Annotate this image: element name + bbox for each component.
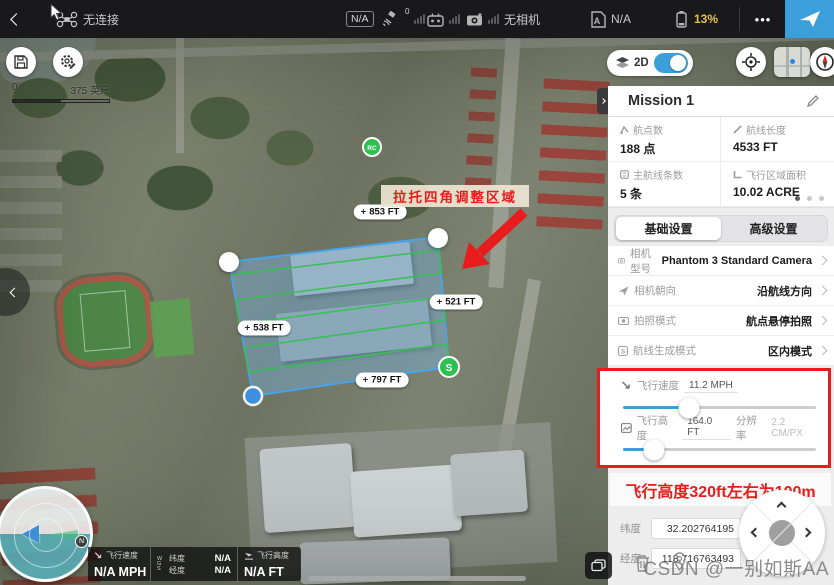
map-trees xyxy=(0,38,300,228)
map-building xyxy=(290,242,414,296)
chevron-up-icon[interactable] xyxy=(777,502,787,512)
map-red-roofs xyxy=(465,67,497,188)
telemetry-lng-value: N/A xyxy=(191,565,231,576)
setting-photo-mode[interactable]: 拍照模式 航点悬停拍照 xyxy=(608,306,834,336)
heading-wedge xyxy=(46,530,78,540)
setting-label: 相机朝向 xyxy=(634,283,676,298)
chevron-right-icon xyxy=(818,346,828,356)
chevron-right-icon xyxy=(600,98,606,104)
more-button[interactable]: ••• xyxy=(746,0,780,38)
setting-label: 航线生成模式 xyxy=(633,343,696,358)
telemetry-lng-label: 经度 xyxy=(169,565,185,576)
rc-signal-bars xyxy=(449,14,460,24)
rc-status xyxy=(427,0,460,38)
collapse-panel-button[interactable] xyxy=(597,88,608,114)
setting-value: 沿航线方向 xyxy=(757,283,812,299)
stat-value: 4533 FT xyxy=(733,140,834,154)
gps-count: 0 xyxy=(405,7,409,16)
resolution-label: 分辨率 xyxy=(736,413,766,443)
chevron-right-icon xyxy=(818,286,828,296)
edit-pencil-icon[interactable] xyxy=(806,94,820,108)
mission-stats: 航点数 188 点 航线长度 4533 FT xyxy=(608,117,834,208)
stat-value: 188 点 xyxy=(620,140,720,157)
mission-title: Mission 1 xyxy=(628,93,806,109)
speed-value: 11.2 MPH xyxy=(684,379,738,393)
stat-route-length: 航线长度 4533 FT xyxy=(721,117,834,162)
aircraft-arrow-icon xyxy=(22,525,39,543)
takeoff-button[interactable] xyxy=(785,0,834,38)
locate-button[interactable] xyxy=(736,47,766,77)
scale-start: 0 xyxy=(12,82,18,97)
setting-camera-model[interactable]: 相机型号 Phantom 3 Standard Camera xyxy=(608,246,834,276)
telemetry-coords: WGS 纬度 N/A 经度 N/A xyxy=(150,547,237,581)
stats-page-dots[interactable] xyxy=(795,196,824,201)
telemetry-alt-label: 飞行高度 xyxy=(257,550,289,561)
save-mission-button[interactable] xyxy=(6,47,36,77)
flight-mode-badge: N/A xyxy=(346,0,374,38)
remote-controller-icon xyxy=(427,12,444,27)
mode-value: N/A xyxy=(346,11,374,27)
mouse-cursor xyxy=(50,3,63,21)
map-building xyxy=(276,298,432,362)
edge-length-value: 521 FT xyxy=(445,297,475,308)
map-building xyxy=(259,443,357,533)
north-badge: N xyxy=(75,535,88,548)
svg-text:A: A xyxy=(594,16,601,26)
flight-mode-status: A N/A xyxy=(590,0,631,38)
stat-label: 航点数 xyxy=(633,122,663,137)
speed-slider-thumb[interactable] xyxy=(678,397,699,418)
stat-waypoints: 航点数 188 点 xyxy=(608,117,721,162)
edge-length-label[interactable]: + 538 FT xyxy=(238,321,291,336)
save-icon xyxy=(13,54,29,70)
telemetry-strip: 飞行速度 N/A MPH WGS 纬度 N/A 经度 N/A 飞行高度 N/A … xyxy=(88,547,301,581)
battery-status: 13% xyxy=(674,0,718,38)
altitude-slider[interactable] xyxy=(623,448,816,451)
settings-tabs: 基础设置 高级设置 xyxy=(608,208,834,242)
mission-panel: Mission 1 航点数 188 点 xyxy=(608,86,834,585)
dpad-center-knob[interactable] xyxy=(769,520,795,546)
flight-sliders-highlight: 飞行速度 11.2 MPH 飞行高度 164.0 FT 分辨率 2.2 CM/P… xyxy=(597,368,831,468)
setting-label: 相机型号 xyxy=(630,246,657,276)
drag-icon: + xyxy=(361,207,367,218)
resolution-value: 2.2 CM/PX xyxy=(771,417,818,439)
chevron-right-icon[interactable] xyxy=(802,528,812,538)
stat-label: 主航线条数 xyxy=(633,167,683,182)
edge-length-label[interactable]: + 797 FT xyxy=(356,373,409,388)
camera-signal-bars xyxy=(488,14,499,24)
chevron-right-icon xyxy=(818,256,828,266)
speed-slider[interactable] xyxy=(623,406,816,409)
layers-icon xyxy=(591,559,606,572)
altitude-slider-thumb[interactable] xyxy=(643,439,664,460)
gps-signal-bars xyxy=(414,14,425,24)
compass-icon xyxy=(815,52,834,72)
battery-icon xyxy=(674,10,689,28)
edge-length-value: 538 FT xyxy=(253,323,283,334)
chevron-left-icon xyxy=(10,13,23,26)
stat-label: 航线长度 xyxy=(746,122,786,137)
setting-value: 航点悬停拍照 xyxy=(746,313,812,329)
speed-icon xyxy=(94,551,103,560)
altitude-row: 飞行高度 164.0 FT 分辨率 2.2 CM/PX xyxy=(621,419,818,436)
camera-status-text: 无相机 xyxy=(504,11,540,28)
chevron-right-icon xyxy=(818,316,828,326)
2d-label: 2D xyxy=(634,57,649,69)
setting-value: 区内模式 xyxy=(768,343,812,359)
svg-text:S: S xyxy=(621,348,626,355)
setting-value: Phantom 3 Standard Camera xyxy=(662,255,812,267)
connection-status: 无连接 xyxy=(83,11,119,28)
telemetry-lat-label: 纬度 xyxy=(169,553,185,564)
telemetry-speed: 飞行速度 N/A MPH xyxy=(88,547,150,581)
edge-length-label[interactable]: + 521 FT xyxy=(430,295,483,310)
speed-icon xyxy=(621,380,632,391)
scale-end: 375 英尺 xyxy=(71,82,110,97)
map-scale: 0 375 英尺 xyxy=(12,82,110,103)
latitude-field[interactable] xyxy=(651,518,741,539)
gear-edit-icon xyxy=(59,53,77,71)
speed-label: 飞行速度 xyxy=(637,378,679,393)
status-bar: 无连接 N/A 0 xyxy=(0,0,834,38)
camera-icon xyxy=(618,256,625,265)
map-court xyxy=(150,298,195,357)
edge-length-value: 797 FT xyxy=(371,375,401,386)
flight-log-icon: A xyxy=(590,11,606,28)
telemetry-alt-value: N/A FT xyxy=(244,565,295,579)
compass-button[interactable] xyxy=(810,47,834,77)
edge-length-value: 853 FT xyxy=(369,207,399,218)
drag-icon: + xyxy=(437,297,443,308)
battery-percent: 13% xyxy=(694,12,718,26)
map-sports-field xyxy=(54,272,155,370)
tab-advanced-settings[interactable]: 高级设置 xyxy=(721,217,826,240)
main-lines-icon xyxy=(620,170,629,179)
home-indicator[interactable] xyxy=(308,576,526,581)
speed-row: 飞行速度 11.2 MPH xyxy=(621,377,818,394)
map-building xyxy=(350,464,462,537)
setting-route-generation[interactable]: S 航线生成模式 区内模式 xyxy=(608,336,834,366)
stat-value: 5 条 xyxy=(620,185,720,202)
waypoint-icon xyxy=(620,125,629,134)
back-button[interactable] xyxy=(12,0,21,38)
drag-icon: + xyxy=(245,323,251,334)
wgs-label: WGS xyxy=(157,557,164,572)
setting-camera-heading[interactable]: 相机朝向 沿航线方向 xyxy=(608,276,834,306)
map-building xyxy=(450,449,528,516)
map-road xyxy=(488,279,541,508)
mission-settings-button[interactable] xyxy=(53,47,83,77)
map-road xyxy=(488,38,520,288)
setting-label: 拍照模式 xyxy=(634,313,676,328)
aircraft-connection: 无连接 xyxy=(56,0,119,38)
map-type-button[interactable] xyxy=(585,552,612,579)
telemetry-speed-label: 飞行速度 xyxy=(106,550,138,561)
chevron-left-icon[interactable] xyxy=(751,528,761,538)
route-length-icon xyxy=(733,125,742,134)
drag-icon: + xyxy=(363,375,369,386)
attitude-compass-gauge xyxy=(0,486,93,582)
annotation-callout: 拉托四角调整区域 xyxy=(381,185,529,207)
mission-planner-app: S RC + 853 FT + 521 FT + 538 FT + 797 FT… xyxy=(0,0,834,585)
mission-header: Mission 1 xyxy=(608,86,834,117)
stat-area: 飞行区域面积 10.02 ACRE xyxy=(721,162,834,207)
settings-list: 相机型号 Phantom 3 Standard Camera 相机朝向 沿航线方… xyxy=(608,246,834,366)
tab-basic-settings[interactable]: 基础设置 xyxy=(616,217,721,240)
2d-3d-toggle[interactable]: 2D xyxy=(607,50,693,76)
chevron-left-icon xyxy=(9,287,19,297)
camera-status: 无相机 xyxy=(466,0,540,38)
locate-icon xyxy=(742,53,760,71)
camera-icon xyxy=(466,13,483,26)
stat-main-lines: 主航线条数 5 条 xyxy=(608,162,721,207)
airplane-icon xyxy=(799,9,821,29)
2d-toggle-switch[interactable] xyxy=(654,53,688,73)
altitude-icon xyxy=(621,423,632,433)
telemetry-altitude: 飞行高度 N/A FT xyxy=(237,547,301,581)
gps-status: 0 xyxy=(382,0,425,38)
latitude-label: 纬度 xyxy=(620,521,644,536)
altitude-icon xyxy=(244,552,254,560)
heading-icon xyxy=(618,286,629,296)
telemetry-speed-value: N/A MPH xyxy=(94,565,144,579)
layers-icon xyxy=(616,57,629,69)
photo-mode-icon xyxy=(618,316,629,325)
route-mode-icon: S xyxy=(618,346,628,356)
divider xyxy=(739,7,740,31)
map-road xyxy=(0,38,834,62)
satellite-icon xyxy=(382,11,400,27)
scale-bar xyxy=(12,99,110,103)
map-road xyxy=(176,38,184,153)
stat-label: 飞行区域面积 xyxy=(746,167,806,182)
minimap-thumbnail[interactable] xyxy=(774,47,810,77)
telemetry-lat-value: N/A xyxy=(191,553,231,564)
flight-mode-value: N/A xyxy=(611,12,631,26)
watermark: CSDN @一别如斯AA xyxy=(643,554,829,581)
altitude-label: 飞行高度 xyxy=(637,413,678,443)
area-ruler-icon xyxy=(733,170,742,179)
altitude-value: 164.0 FT xyxy=(682,415,731,440)
